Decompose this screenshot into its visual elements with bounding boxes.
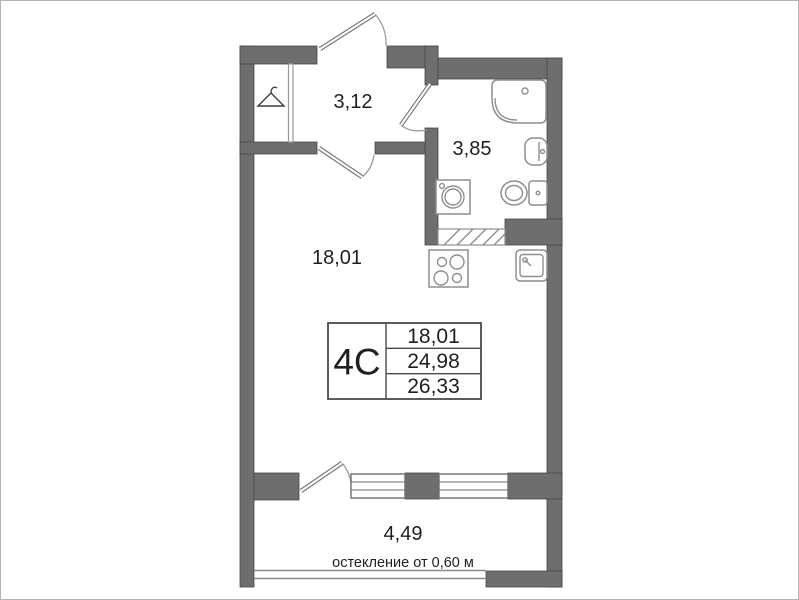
window-right — [439, 474, 508, 498]
closet — [258, 64, 293, 142]
wall-step-bathroom — [425, 46, 438, 85]
wall-window-pier-mid — [405, 473, 439, 499]
living-area-label: 18,01 — [312, 247, 362, 269]
washing-machine-icon — [436, 180, 470, 214]
room-door — [319, 148, 374, 177]
wall-hall-bottom-right — [375, 142, 425, 154]
corner-bath-icon — [492, 80, 546, 123]
toilet-icon — [501, 181, 547, 205]
closet-partition — [289, 64, 294, 142]
info-table: 4С 18,01 24,98 26,33 — [328, 323, 481, 399]
wall-balcony-stub — [254, 473, 299, 500]
wall-sink-icon — [525, 138, 547, 165]
wall-balcony-bottom-right — [486, 571, 562, 587]
floor-plan-canvas: 3,12 3,85 18,01 4,49 остекление от 0,60 … — [1, 1, 799, 600]
wall-bathroom-bottom-right — [505, 219, 562, 245]
apartment-type-label: 4С — [333, 342, 380, 383]
wall-hall-bottom-left — [240, 142, 317, 154]
apartment-area-value: 24,98 — [407, 350, 460, 373]
bathroom-area-label: 3,85 — [453, 138, 492, 160]
kitchen-sink-icon — [516, 250, 547, 281]
vent-shaft-hatch-icon — [438, 229, 505, 245]
entrance-door — [320, 14, 386, 49]
balcony-area-label: 4,49 — [384, 523, 423, 545]
floor-plan: 3,12 3,85 18,01 4,49 остекление от 0,60 … — [0, 0, 799, 600]
wall-right — [547, 58, 562, 587]
hallway-area-label: 3,12 — [334, 91, 373, 113]
bathroom-door — [401, 84, 430, 131]
balcony-door — [301, 463, 352, 491]
wall-left — [240, 46, 254, 587]
living-area-value: 18,01 — [407, 325, 460, 348]
wall-bathroom-top — [438, 58, 562, 79]
total-area-value: 26,33 — [407, 375, 460, 398]
wall-window-pier-right — [508, 473, 562, 499]
wall-top-left — [240, 46, 317, 64]
window-left — [351, 474, 405, 498]
stove-icon — [429, 250, 468, 287]
balcony-glazing-note: остекление от 0,60 м — [332, 555, 474, 571]
hanger-icon — [258, 87, 284, 106]
balcony-glazing — [254, 571, 486, 579]
